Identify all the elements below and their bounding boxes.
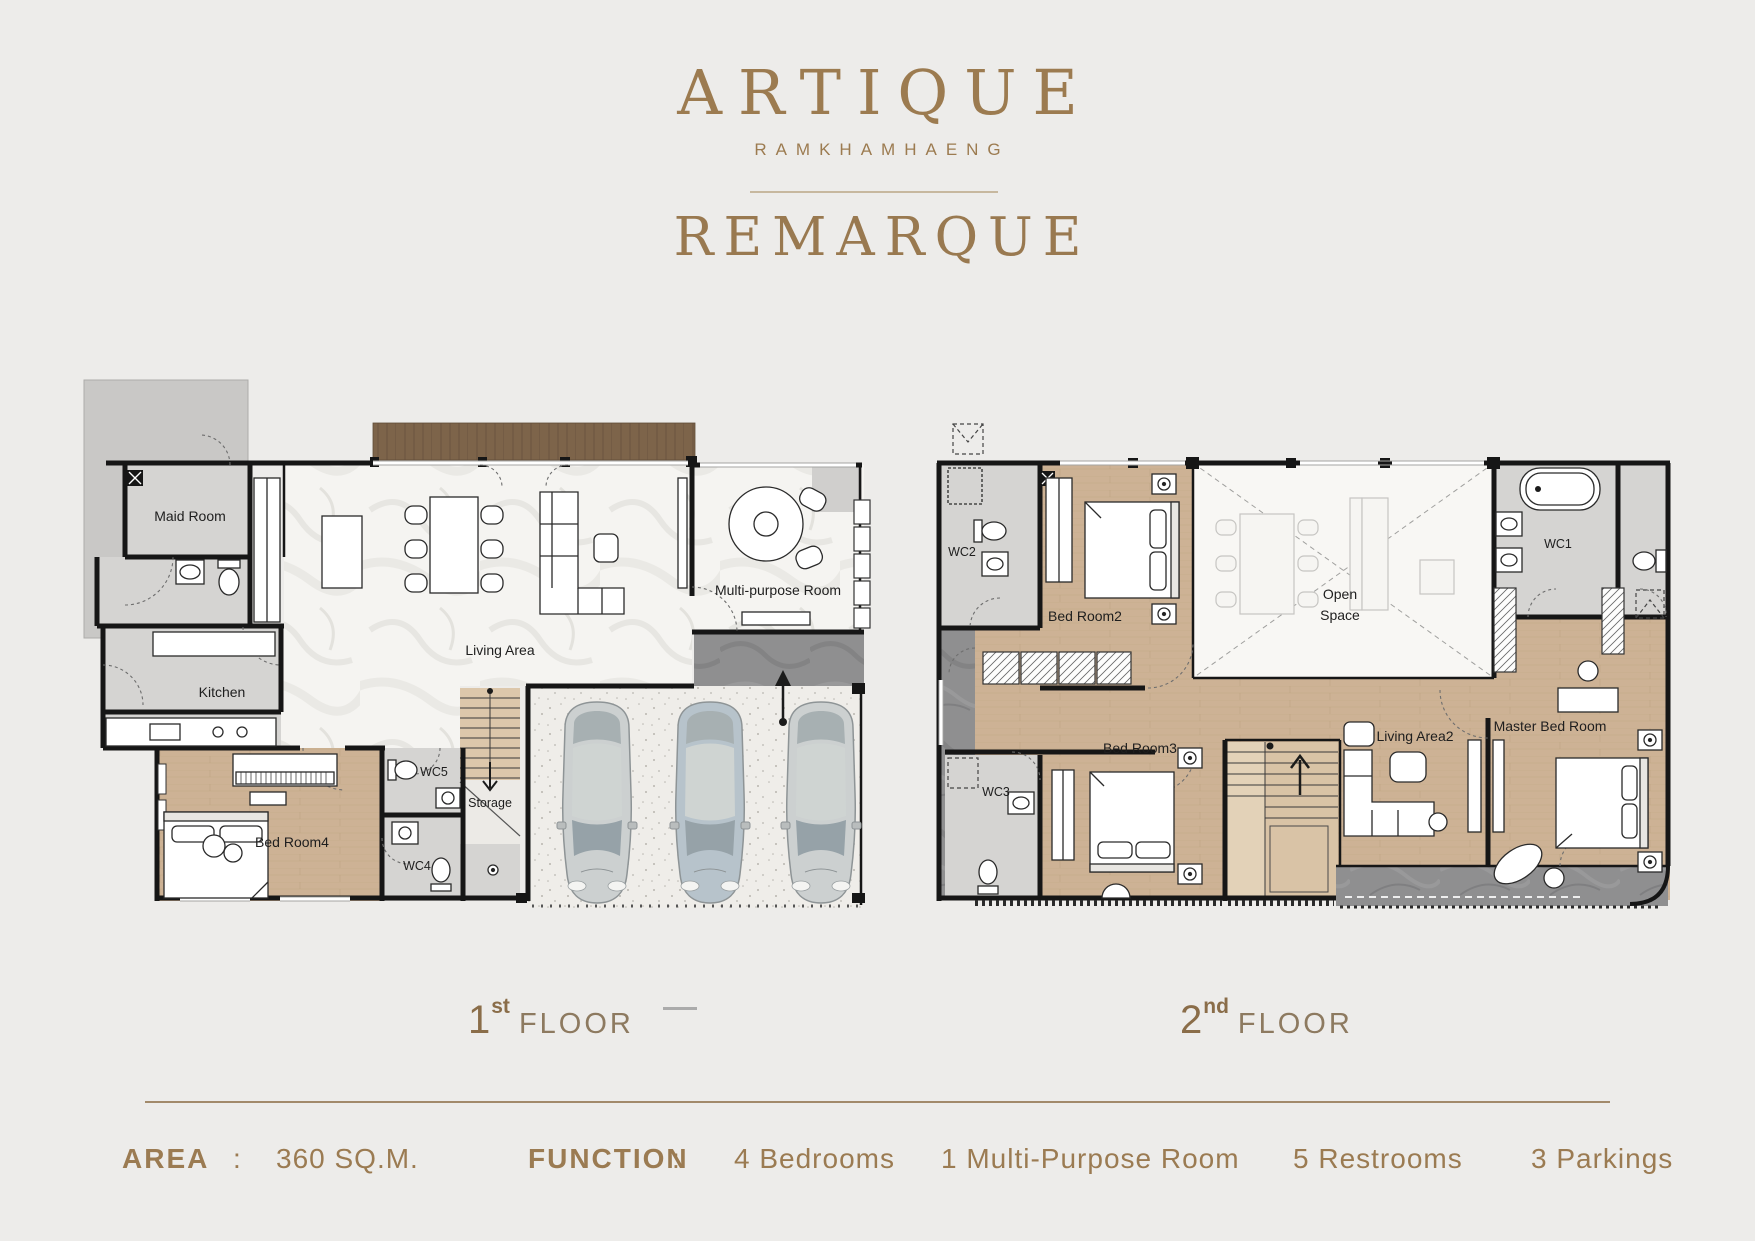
low-cabinet [742, 612, 810, 625]
floor-1-word: FLOOR [519, 1008, 634, 1040]
sink-icon [1008, 792, 1034, 814]
toilet-icon [978, 860, 998, 894]
room-label-wc2: WC2 [948, 545, 976, 559]
toilet-icon [218, 560, 240, 595]
room-label-bed2: Bed Room2 [1048, 608, 1122, 624]
footer-divider [145, 1101, 1610, 1103]
header-divider [750, 191, 998, 193]
room-label-wc3: WC3 [982, 785, 1010, 799]
room-label-multi: Multi-purpose Room [715, 582, 841, 598]
room-label-living2: Living Area2 [1376, 728, 1453, 744]
bed [1085, 502, 1179, 598]
floor-2-word: FLOOR [1238, 1008, 1353, 1040]
floor-1-number: 1 [468, 998, 491, 1042]
area-label: AREA [122, 1143, 209, 1175]
room-label-wc1: WC1 [1544, 537, 1572, 551]
house-model-title: REMARQUE [0, 207, 1755, 268]
sideboard [322, 516, 362, 588]
brand-location: RAMKHAMHAENG [0, 140, 1755, 160]
floor-plan-2: WC2 Bed Room2 Open Space WC1 Bed Room3 W… [925, 415, 1720, 920]
function-label: FUNCTION [528, 1143, 689, 1175]
toilet-icon [974, 520, 1006, 542]
round-basin [1578, 661, 1598, 681]
room-label-maid: Maid Room [154, 508, 226, 524]
nightstand [1152, 474, 1176, 494]
floor-2-ordinal: nd [1203, 995, 1229, 1018]
sink-icon [176, 560, 204, 584]
vanity-counter [1558, 688, 1618, 712]
sink-icon [982, 552, 1008, 576]
tv-console [1468, 740, 1481, 832]
function-bedrooms: 4 Bedrooms [734, 1143, 895, 1175]
wood-deck [373, 423, 695, 460]
sink-icon [436, 788, 460, 808]
car-icon [670, 702, 750, 903]
sink-icon [1496, 548, 1522, 572]
area-colon: : [233, 1143, 242, 1175]
shelf [1493, 740, 1504, 832]
dining-table [405, 497, 503, 593]
pouf [203, 835, 225, 857]
nightstand [1178, 864, 1202, 884]
floor-1-ordinal: st [491, 995, 510, 1018]
room-label-bed3: Bed Room3 [1103, 740, 1177, 756]
function-restrooms: 5 Restrooms [1293, 1143, 1463, 1175]
floor-1-title: 1stFLOOR [468, 998, 634, 1043]
room-label-wc4: WC4 [403, 859, 431, 873]
brand-logo: ARTIQUE [0, 56, 1755, 129]
toilet-icon [388, 760, 417, 780]
function-multipurpose: 1 Multi-Purpose Room [941, 1143, 1240, 1175]
pouf [224, 844, 242, 862]
floor-2-number: 2 [1180, 998, 1203, 1042]
sink-icon [1496, 512, 1522, 536]
function-parkings: 3 Parkings [1531, 1143, 1673, 1175]
room-label-open-1: Open [1323, 586, 1357, 602]
bathtub-icon [1520, 468, 1600, 510]
area-value: 360 SQ.M. [276, 1143, 419, 1175]
car-icon [781, 702, 861, 903]
room-label-living: Living Area [465, 642, 534, 658]
toilet-icon [1633, 550, 1666, 572]
tv-console [678, 478, 687, 588]
nightstand [1152, 604, 1176, 624]
room-label-storage: Storage [468, 796, 512, 810]
room-label-kitchen: Kitchen [199, 684, 246, 700]
nightstand [1638, 852, 1662, 872]
room-label-bed4: Bed Room4 [255, 834, 329, 850]
kitchen-counter [106, 718, 276, 746]
bed [1556, 758, 1648, 848]
separator-dash [663, 1007, 697, 1010]
armchair [1344, 722, 1374, 746]
floor-plan-1: Maid Room Kitchen Living Area Multi-purp… [75, 370, 895, 915]
room-label-open-2: Space [1320, 607, 1360, 623]
armchair [594, 534, 618, 562]
nightstand [1178, 748, 1202, 768]
floor-2-title: 2ndFLOOR [1180, 998, 1353, 1043]
ottoman [1390, 752, 1426, 782]
room-label-wc5: WC5 [420, 765, 448, 779]
car-icon [557, 702, 637, 903]
room-label-master: Master Bed Room [1494, 718, 1607, 734]
toilet-icon [431, 858, 451, 891]
kitchen-island [153, 632, 275, 656]
bed [1090, 772, 1174, 872]
sink-icon [392, 822, 418, 844]
function-colon: : [672, 1143, 681, 1175]
brochure-page: ARTIQUE RAMKHAMHAENG REMARQUE [0, 0, 1755, 1241]
nightstand [1638, 730, 1662, 750]
